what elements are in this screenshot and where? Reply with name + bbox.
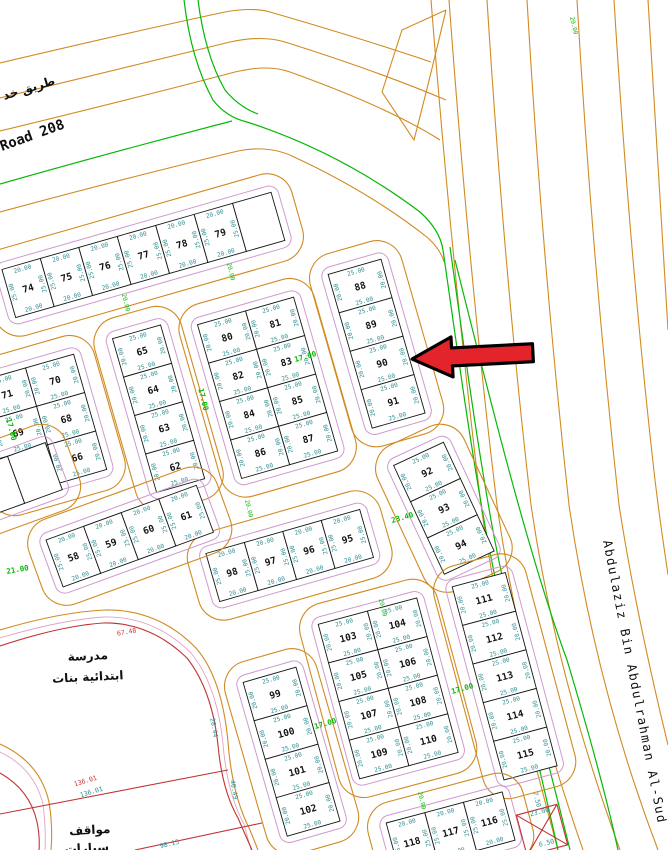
boundary-dim: 67.48 bbox=[116, 626, 137, 637]
boundary-dim: 98.15 bbox=[159, 838, 180, 850]
green-road-dim: 21.00 bbox=[6, 563, 30, 576]
cad-plan-canvas: 7420.0020.0025.0025.007520.0020.0025.002… bbox=[0, 0, 668, 850]
corner-street-orange bbox=[0, 744, 52, 850]
green-tick-dim: 20.00 bbox=[568, 16, 579, 36]
highway-lane-6 bbox=[614, 0, 668, 575]
boundary-dim: 23.00 bbox=[529, 806, 550, 819]
boundary-dim: 28.44 bbox=[208, 717, 219, 738]
school-label-line1: مدرسة bbox=[67, 648, 108, 664]
red-arrow-annotation bbox=[411, 333, 534, 379]
road-208-label-arabic: طريق خد bbox=[1, 74, 57, 103]
parking-label-line1: مواقف bbox=[69, 822, 111, 839]
green-road-vertical-2 bbox=[198, 0, 258, 114]
plot-blocks-layer: 7420.0020.0025.0025.007520.0020.0025.002… bbox=[0, 168, 582, 850]
highway-lane-7 bbox=[648, 0, 668, 330]
corner-red-curve bbox=[0, 773, 39, 850]
green-tick-dim: 20.00 bbox=[225, 262, 236, 282]
boundary-dim: 6.50 bbox=[538, 837, 555, 849]
green-tick-dim: 20.00 bbox=[243, 499, 254, 519]
road-208-line-3 bbox=[0, 68, 440, 140]
green-road-dim: 17.00 bbox=[450, 681, 475, 696]
road-208-line-1 bbox=[0, 10, 431, 64]
school-parking-divider bbox=[0, 770, 228, 814]
block-row-95-98: 9820.0020.0025.0025.009720.0020.0025.002… bbox=[181, 485, 398, 627]
green-tick-dim: 20.00 bbox=[120, 293, 131, 313]
school-block bbox=[0, 623, 262, 850]
boundary-dim: 40.49 bbox=[228, 779, 239, 800]
school-label-line2: ابتدائية بنات bbox=[52, 668, 124, 686]
highway-gore-wedge bbox=[382, 10, 446, 140]
boundary-dim: 7.50 bbox=[531, 791, 543, 808]
block-row-116-118: 11820.0020.0025.0025.0011720.0020.0025.0… bbox=[362, 767, 540, 850]
parking-south-line bbox=[135, 823, 262, 850]
block-col-111-115: 11125.0025.0020.0020.0011225.0025.0020.0… bbox=[428, 548, 582, 804]
parking-label-line2: سيارات bbox=[64, 840, 109, 850]
boundary-dim: 136.01 bbox=[79, 785, 104, 800]
